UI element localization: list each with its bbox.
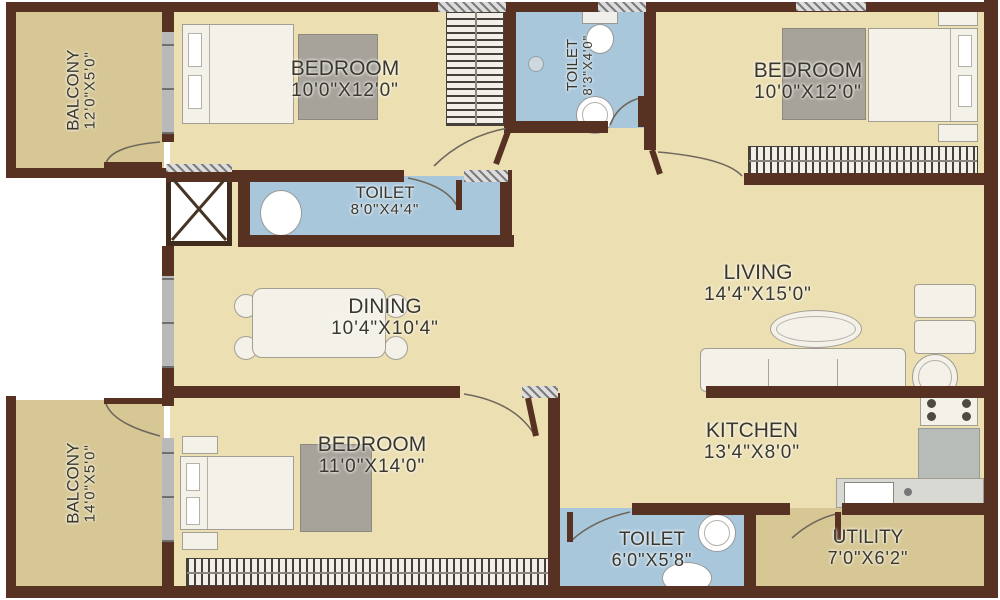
door-arc [464, 394, 534, 434]
door-arc [106, 404, 160, 436]
room-name: TOILET [285, 184, 485, 202]
room-name: BALCONY [65, 403, 83, 563]
room-name: BEDROOM [668, 60, 948, 83]
floor-plan: BALCONY 12'0"X5'0" BEDROOM 10'0"X12'0" T… [0, 0, 1000, 600]
bedroom-bottom-label: BEDROOM 11'0"X14'0" [232, 434, 512, 477]
room-name: DINING [245, 296, 525, 319]
door-leaf [528, 398, 536, 436]
room-dims: 14'4"X15'0" [618, 285, 898, 306]
utility-label: UTILITY 7'0"X6'2" [748, 528, 988, 568]
room-dims: 7'0"X6'2" [748, 549, 988, 568]
room-dims: 10'4"X10'4" [245, 319, 525, 340]
room-dims: 6'0"X5'8" [552, 551, 752, 570]
bedroom-top-left-label: BEDROOM 10'0"X12'0" [205, 58, 485, 101]
door-arc [610, 98, 640, 125]
room-name: LIVING [618, 262, 898, 285]
room-dims: 14'0"X5'0" [83, 403, 99, 563]
balcony-bottom-left-label: BALCONY 14'0"X5'0" [65, 403, 100, 563]
room-name: TOILET [552, 530, 752, 551]
room-dims: 11'0"X14'0" [232, 457, 512, 478]
toilet-bottom-label: TOILET 6'0"X5'8" [552, 530, 752, 570]
room-dims: 8'3"X4'0" [581, 0, 595, 145]
room-name: KITCHEN [612, 420, 892, 443]
bedroom-top-right-label: BEDROOM 10'0"X12'0" [668, 60, 948, 103]
room-dims: 10'0"X12'0" [205, 81, 485, 102]
toilet-top-label: TOILET 8'3"X4'0" [565, 0, 595, 145]
room-name: TOILET [565, 0, 581, 145]
kitchen-label: KITCHEN 13'4"X8'0" [612, 420, 892, 463]
toilet-middle-label: TOILET 8'0"X4'4" [285, 184, 485, 219]
door-leaf [652, 150, 660, 174]
balcony-top-left-label: BALCONY 12'0"X5'0" [65, 10, 100, 170]
door-leaf [496, 126, 510, 164]
room-dims: 12'0"X5'0" [83, 10, 99, 170]
door-arc [658, 152, 742, 176]
room-dims: 10'0"X12'0" [668, 83, 948, 104]
door-arc [106, 142, 160, 163]
room-name: BALCONY [65, 10, 83, 170]
dining-label: DINING 10'4"X10'4" [245, 296, 525, 339]
living-label: LIVING 14'4"X15'0" [618, 262, 898, 305]
room-dims: 13'4"X8'0" [612, 443, 892, 464]
room-name: BEDROOM [205, 58, 485, 81]
room-name: BEDROOM [232, 434, 512, 457]
room-dims: 8'0"X4'4" [285, 202, 485, 218]
room-name: UTILITY [748, 528, 988, 549]
